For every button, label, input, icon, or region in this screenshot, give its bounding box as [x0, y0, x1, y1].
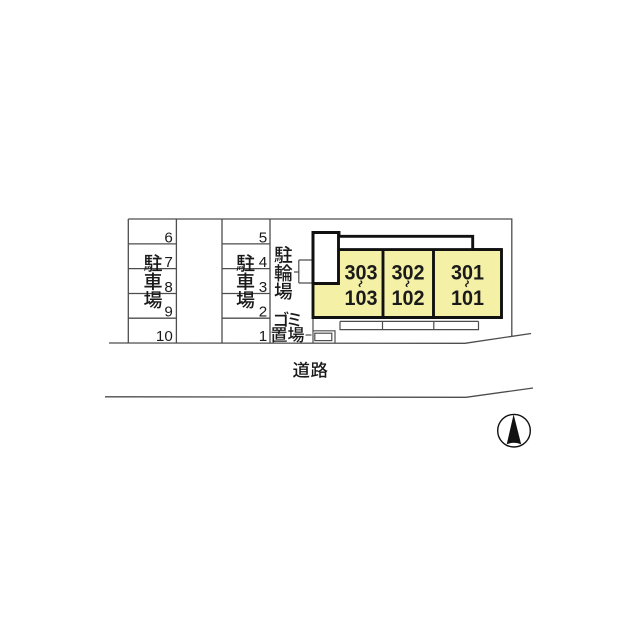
svg-text:7: 7: [164, 254, 172, 271]
svg-text:9: 9: [164, 304, 172, 321]
svg-text:3: 3: [259, 279, 267, 296]
svg-text:5: 5: [259, 229, 267, 246]
svg-text:102: 102: [392, 287, 425, 310]
svg-text:6: 6: [164, 229, 172, 246]
svg-text:4: 4: [259, 254, 267, 271]
svg-text:103: 103: [345, 287, 378, 310]
svg-text:2: 2: [259, 304, 267, 321]
svg-text:101: 101: [451, 287, 484, 310]
svg-text:8: 8: [164, 279, 172, 296]
